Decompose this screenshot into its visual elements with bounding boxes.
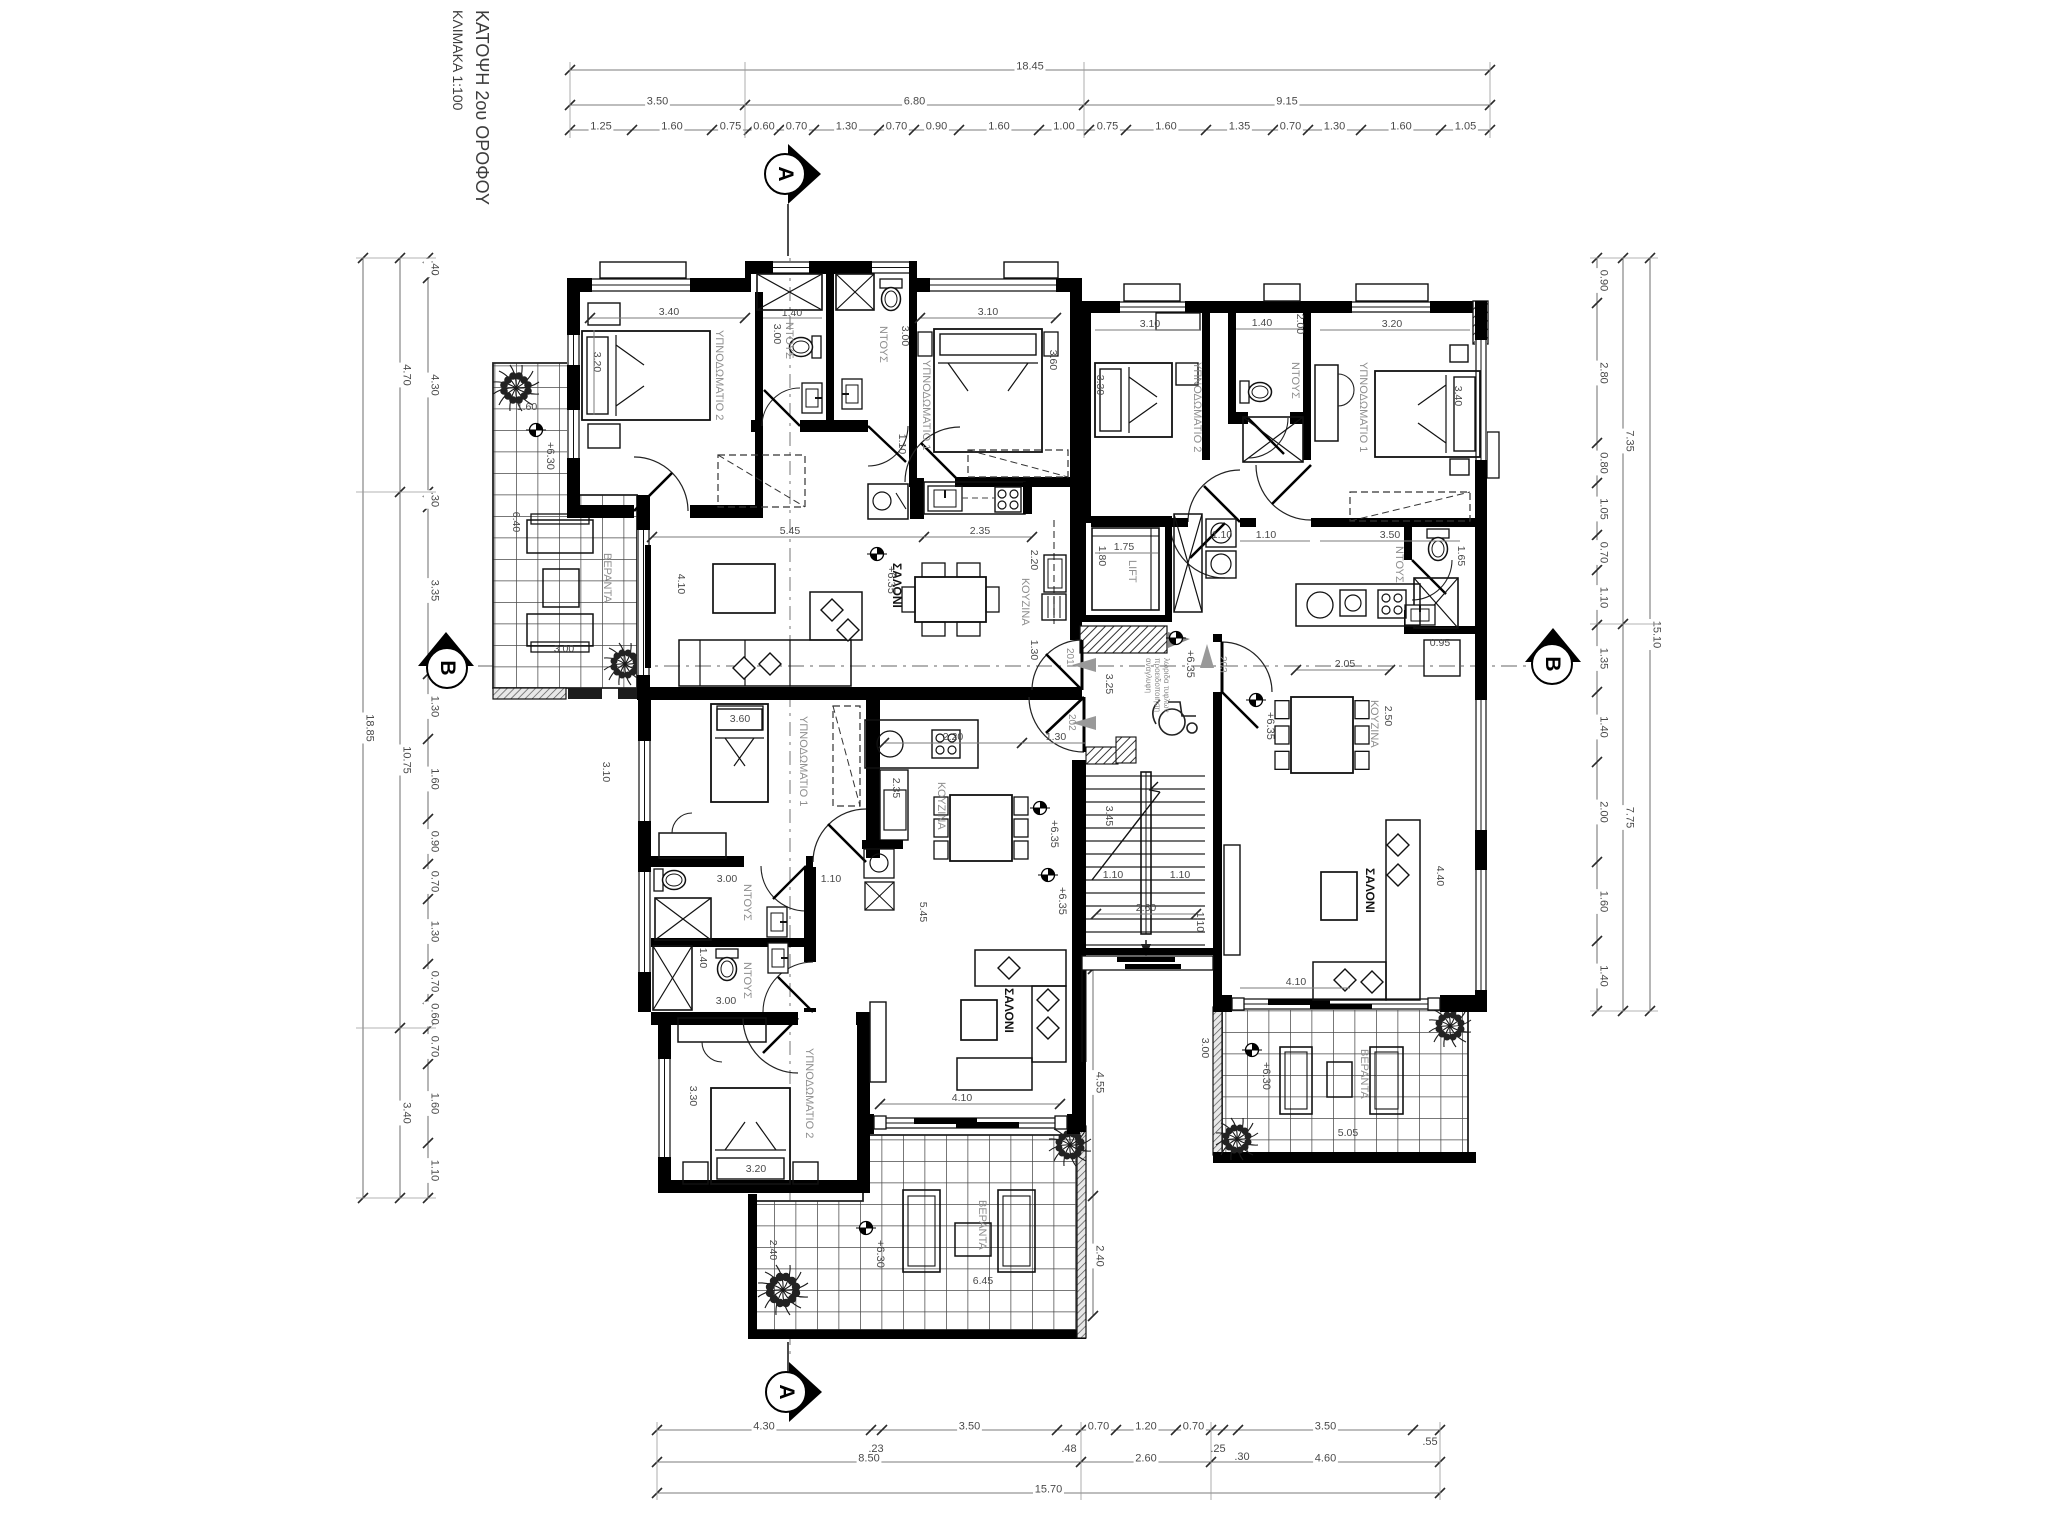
svg-text:3.50: 3.50 bbox=[1315, 1421, 1336, 1433]
svg-text:2.80: 2.80 bbox=[1598, 362, 1610, 383]
svg-text:ΥΠΝΟΔΩΜΑΤΙΟ 1: ΥΠΝΟΔΩΜΑΤΙΟ 1 bbox=[797, 716, 809, 806]
svg-text:3.10: 3.10 bbox=[600, 762, 612, 783]
svg-text:1.10: 1.10 bbox=[1598, 587, 1610, 608]
svg-text:ΒΕΡΑΝΤΑ: ΒΕΡΑΝΤΑ bbox=[601, 553, 613, 603]
svg-text:+6.30: +6.30 bbox=[544, 442, 556, 470]
svg-text:1.10: 1.10 bbox=[1194, 912, 1206, 933]
svg-text:1.35: 1.35 bbox=[1229, 121, 1250, 133]
svg-text:ΝΤΟΥΣ: ΝΤΟΥΣ bbox=[1393, 546, 1405, 583]
svg-text:1.10: 1.10 bbox=[1103, 869, 1124, 881]
svg-text:3.00: 3.00 bbox=[899, 326, 911, 347]
svg-text:18.45: 18.45 bbox=[1016, 61, 1044, 73]
svg-text:0.70: 0.70 bbox=[429, 1036, 441, 1057]
svg-text:LIFT: LIFT bbox=[1126, 560, 1138, 583]
svg-text:A: A bbox=[775, 1384, 798, 1399]
svg-text:203: 203 bbox=[1217, 656, 1228, 673]
svg-text:1.40: 1.40 bbox=[1598, 716, 1610, 737]
svg-text:3.60: 3.60 bbox=[730, 713, 751, 725]
svg-text:8.50: 8.50 bbox=[858, 1453, 879, 1465]
svg-text:0.90: 0.90 bbox=[926, 121, 947, 133]
svg-text:+6.35: +6.35 bbox=[1184, 650, 1196, 678]
svg-text:18.85: 18.85 bbox=[364, 714, 376, 742]
svg-text:ΥΠΝΟΔΩΜΑΤΙΟ 1: ΥΠΝΟΔΩΜΑΤΙΟ 1 bbox=[1357, 362, 1369, 452]
svg-text:.30: .30 bbox=[1234, 1451, 1249, 1463]
svg-text:3.30: 3.30 bbox=[687, 1086, 699, 1107]
svg-text:+6.30: +6.30 bbox=[874, 1240, 886, 1268]
svg-text:0.70: 0.70 bbox=[429, 871, 441, 892]
svg-text:4.55: 4.55 bbox=[1094, 1072, 1106, 1093]
svg-text:ΝΤΟΥΣ: ΝΤΟΥΣ bbox=[877, 326, 889, 363]
svg-text:ΝΤΟΥΣ: ΝΤΟΥΣ bbox=[741, 884, 753, 921]
svg-text:7.75: 7.75 bbox=[1624, 807, 1636, 828]
svg-text:3.40: 3.40 bbox=[401, 1102, 413, 1123]
svg-text:2.35: 2.35 bbox=[970, 525, 991, 537]
svg-text:201: 201 bbox=[1064, 648, 1075, 665]
svg-text:202: 202 bbox=[1066, 714, 1077, 731]
svg-text:0.90: 0.90 bbox=[429, 831, 441, 852]
svg-text:ΒΕΡΑΝΤΑ: ΒΕΡΑΝΤΑ bbox=[976, 1200, 988, 1250]
svg-text:2.35: 2.35 bbox=[890, 778, 902, 799]
svg-text:3.00: 3.00 bbox=[717, 873, 738, 885]
svg-text:2.40: 2.40 bbox=[1094, 1245, 1106, 1266]
svg-text:3.50: 3.50 bbox=[959, 1421, 980, 1433]
svg-text:3.30: 3.30 bbox=[1094, 375, 1106, 396]
svg-text:1.60: 1.60 bbox=[661, 121, 682, 133]
svg-text:0.90: 0.90 bbox=[1598, 270, 1610, 291]
svg-text:4.30: 4.30 bbox=[753, 1421, 774, 1433]
svg-text:7.35: 7.35 bbox=[1624, 430, 1636, 451]
svg-text:2.40: 2.40 bbox=[767, 1240, 779, 1261]
svg-text:1.30: 1.30 bbox=[429, 921, 441, 942]
svg-text:4.10: 4.10 bbox=[1286, 976, 1307, 988]
svg-text:+6.35: +6.35 bbox=[1264, 712, 1276, 740]
svg-text:3.20: 3.20 bbox=[746, 1163, 767, 1175]
svg-text:2.00: 2.00 bbox=[1294, 314, 1306, 335]
svg-text:1.05: 1.05 bbox=[1455, 121, 1476, 133]
svg-text:1.20: 1.20 bbox=[1135, 1421, 1156, 1433]
svg-text:3.60: 3.60 bbox=[1047, 350, 1059, 371]
svg-text:.30: .30 bbox=[429, 492, 441, 507]
svg-text:1.25: 1.25 bbox=[590, 121, 611, 133]
svg-text:1.10: 1.10 bbox=[429, 1160, 441, 1181]
svg-text:.55: .55 bbox=[1422, 1436, 1437, 1448]
svg-text:+6.35: +6.35 bbox=[1056, 887, 1068, 915]
svg-text:6.45: 6.45 bbox=[973, 1275, 994, 1287]
svg-text:1.40: 1.40 bbox=[1598, 965, 1610, 986]
svg-text:ΒΕΡΑΝΤΑ: ΒΕΡΑΝΤΑ bbox=[1358, 1049, 1370, 1099]
svg-text:1.10: 1.10 bbox=[896, 434, 908, 455]
svg-text:1.60: 1.60 bbox=[1598, 891, 1610, 912]
svg-text:4.70: 4.70 bbox=[401, 364, 413, 385]
svg-text:4.60: 4.60 bbox=[1315, 1453, 1336, 1465]
svg-text:προειδοποιηση: προειδοποιηση bbox=[1153, 658, 1162, 712]
svg-text:4.10: 4.10 bbox=[952, 1092, 973, 1104]
svg-text:1.40: 1.40 bbox=[782, 307, 803, 319]
svg-text:0.70: 0.70 bbox=[886, 121, 907, 133]
svg-text:15.10: 15.10 bbox=[1651, 621, 1663, 649]
svg-text:0.75: 0.75 bbox=[1097, 121, 1118, 133]
svg-text:ΚΑΤΟΨΗ 2ου ΟΡΟΦΟΥ: ΚΑΤΟΨΗ 2ου ΟΡΟΦΟΥ bbox=[472, 10, 492, 205]
svg-text:0.70: 0.70 bbox=[1280, 121, 1301, 133]
svg-text:3.40: 3.40 bbox=[1452, 386, 1464, 407]
svg-text:.25: .25 bbox=[1210, 1443, 1225, 1455]
svg-text:1.65: 1.65 bbox=[1455, 546, 1467, 567]
svg-text:4.30: 4.30 bbox=[429, 374, 441, 395]
svg-text:2.50: 2.50 bbox=[1382, 706, 1394, 727]
svg-text:ΥΠΝΟΔΩΜΑΤΙΟ 2: ΥΠΝΟΔΩΜΑΤΙΟ 2 bbox=[713, 330, 725, 420]
svg-text:3.40: 3.40 bbox=[659, 306, 680, 318]
svg-text:10.75: 10.75 bbox=[401, 746, 413, 774]
svg-text:4.10: 4.10 bbox=[675, 574, 687, 595]
svg-text:ΣΑΛΟΝΙ: ΣΑΛΟΝΙ bbox=[1363, 868, 1377, 913]
svg-text:0.60: 0.60 bbox=[753, 121, 774, 133]
svg-text:ΚΟΥΖΙΝΑ: ΚΟΥΖΙΝΑ bbox=[935, 782, 947, 830]
svg-text:2.20: 2.20 bbox=[943, 731, 964, 743]
svg-text:ΣΑΛΟΝΙ: ΣΑΛΟΝΙ bbox=[1002, 988, 1016, 1033]
svg-text:5.05: 5.05 bbox=[1338, 1127, 1359, 1139]
svg-text:ΥΠΝΟΔΩΜΑΤΙΟ 2: ΥΠΝΟΔΩΜΑΤΙΟ 2 bbox=[803, 1048, 815, 1138]
svg-text:1.60: 1.60 bbox=[988, 121, 1009, 133]
svg-text:2.60: 2.60 bbox=[1135, 1453, 1156, 1465]
svg-text:3.00: 3.00 bbox=[1199, 1038, 1211, 1059]
svg-text:1.75: 1.75 bbox=[1114, 541, 1135, 553]
svg-text:3.00: 3.00 bbox=[771, 324, 783, 345]
svg-text:2.05: 2.05 bbox=[1335, 658, 1356, 670]
svg-text:1.00: 1.00 bbox=[1053, 121, 1074, 133]
svg-text:ΚΛΙΜΑΚΑ 1:100: ΚΛΙΜΑΚΑ 1:100 bbox=[450, 10, 466, 111]
svg-text:1.60: 1.60 bbox=[429, 768, 441, 789]
svg-text:B: B bbox=[1541, 656, 1564, 671]
svg-text:5.45: 5.45 bbox=[917, 902, 929, 923]
svg-text:4.40: 4.40 bbox=[1434, 866, 1446, 887]
svg-text:3.00: 3.00 bbox=[554, 643, 575, 655]
svg-text:1.80: 1.80 bbox=[1096, 546, 1108, 567]
svg-text:.40: .40 bbox=[429, 260, 441, 275]
svg-text:1.30: 1.30 bbox=[1028, 640, 1040, 661]
svg-text:3.45: 3.45 bbox=[1103, 806, 1115, 827]
svg-text:3.50: 3.50 bbox=[1380, 529, 1401, 541]
svg-text:1.40: 1.40 bbox=[1252, 317, 1273, 329]
svg-text:1.10: 1.10 bbox=[1212, 529, 1233, 541]
svg-text:0.70: 0.70 bbox=[1598, 542, 1610, 563]
svg-text:3.35: 3.35 bbox=[429, 580, 441, 601]
svg-text:2.00: 2.00 bbox=[1598, 801, 1610, 822]
svg-text:ΝΤΟΥΣ: ΝΤΟΥΣ bbox=[783, 322, 795, 359]
svg-text:1.30: 1.30 bbox=[1324, 121, 1345, 133]
svg-text:ΥΠΝΟΔΩΜΑΤΙΟ 1: ΥΠΝΟΔΩΜΑΤΙΟ 1 bbox=[920, 360, 932, 450]
svg-text:1.30: 1.30 bbox=[836, 121, 857, 133]
svg-text:1.40: 1.40 bbox=[697, 948, 709, 969]
svg-text:λωριδα τυφλων: λωριδα τυφλων bbox=[1162, 658, 1171, 712]
svg-text:ΝΤΟΥΣ: ΝΤΟΥΣ bbox=[741, 962, 753, 999]
svg-text:3.00: 3.00 bbox=[716, 995, 737, 1007]
svg-text:9.15: 9.15 bbox=[1276, 96, 1297, 108]
svg-text:1.10: 1.10 bbox=[1256, 529, 1277, 541]
svg-text:0.60: 0.60 bbox=[429, 1003, 441, 1024]
svg-text:+6.35: +6.35 bbox=[885, 566, 897, 594]
svg-text:ΝΤΟΥΣ: ΝΤΟΥΣ bbox=[1289, 362, 1301, 399]
svg-text:1.60: 1.60 bbox=[1155, 121, 1176, 133]
svg-text:3.20: 3.20 bbox=[591, 352, 603, 373]
svg-text:3.50: 3.50 bbox=[647, 96, 668, 108]
svg-text:ΚΟΥΖΙΝΑ: ΚΟΥΖΙΝΑ bbox=[1019, 578, 1031, 626]
svg-text:0.95: 0.95 bbox=[1430, 637, 1451, 649]
svg-text:ΥΠΝΟΔΩΜΑΤΙΟ 2: ΥΠΝΟΔΩΜΑΤΙΟ 2 bbox=[1191, 362, 1203, 452]
svg-text:6.40: 6.40 bbox=[510, 512, 522, 533]
svg-text:0.70: 0.70 bbox=[429, 971, 441, 992]
svg-text:0.70: 0.70 bbox=[1088, 1421, 1109, 1433]
svg-text:1.05: 1.05 bbox=[1598, 498, 1610, 519]
svg-text:1.35: 1.35 bbox=[1598, 648, 1610, 669]
svg-text:3.25: 3.25 bbox=[1103, 674, 1115, 695]
svg-text:3.20: 3.20 bbox=[1382, 318, 1403, 330]
svg-text:3.10: 3.10 bbox=[978, 306, 999, 318]
svg-text:3.10: 3.10 bbox=[1140, 318, 1161, 330]
svg-text:ΚΟΥΖΙΝΑ: ΚΟΥΖΙΝΑ bbox=[1368, 700, 1380, 748]
svg-text:2.20: 2.20 bbox=[1028, 550, 1040, 571]
svg-text:.48: .48 bbox=[1061, 1443, 1076, 1455]
svg-text:0.75: 0.75 bbox=[720, 121, 741, 133]
svg-text:A: A bbox=[774, 166, 797, 181]
svg-text:1.30: 1.30 bbox=[429, 696, 441, 717]
svg-text:+6.30: +6.30 bbox=[1260, 1062, 1272, 1090]
svg-text:0.80: 0.80 bbox=[1598, 452, 1610, 473]
svg-text:2.60: 2.60 bbox=[1136, 902, 1157, 914]
svg-text:1.10: 1.10 bbox=[821, 873, 842, 885]
svg-text:15.70: 15.70 bbox=[1035, 1484, 1063, 1496]
svg-text:1.60: 1.60 bbox=[429, 1093, 441, 1114]
svg-text:αναγλυφη: αναγλυφη bbox=[1144, 658, 1153, 693]
svg-text:6.80: 6.80 bbox=[904, 96, 925, 108]
svg-text:1.60: 1.60 bbox=[1390, 121, 1411, 133]
svg-text:0.70: 0.70 bbox=[1183, 1421, 1204, 1433]
svg-text:1.60: 1.60 bbox=[517, 401, 538, 413]
svg-text:+6.35: +6.35 bbox=[1048, 820, 1060, 848]
svg-text:1.10: 1.10 bbox=[1170, 869, 1191, 881]
svg-text:1.30: 1.30 bbox=[1046, 731, 1067, 743]
svg-text:0.70: 0.70 bbox=[786, 121, 807, 133]
svg-text:5.45: 5.45 bbox=[780, 525, 801, 537]
svg-text:B: B bbox=[436, 660, 459, 675]
